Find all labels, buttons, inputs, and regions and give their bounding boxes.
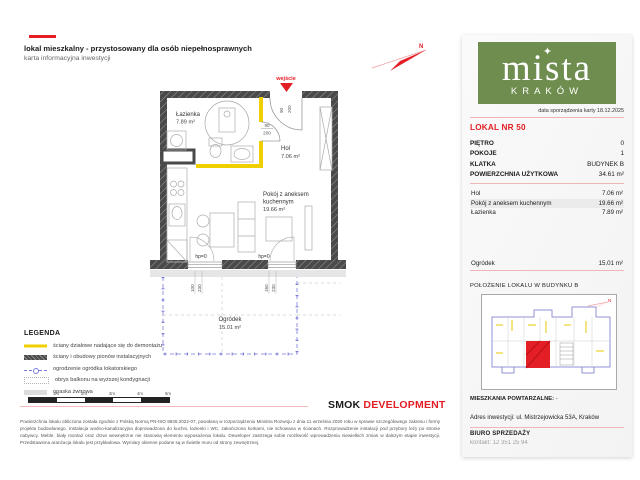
sales-office-contact: kontakt: 12 351 25 94 [470, 440, 624, 446]
attr-row-usable-area: POWIERZCHNIA UŻYTKOWA 34.61 m² [470, 170, 624, 180]
legend-item-fence: ogrodzenie ogródka lokatorskiego [24, 365, 224, 372]
panel-divider-1 [470, 117, 624, 118]
svg-text:230: 230 [197, 284, 202, 292]
svg-text:90: 90 [264, 123, 270, 128]
legend-title: LEGENDA [24, 330, 224, 337]
living-label-line1: Pokój z aneksem [263, 192, 309, 198]
bathroom-label: Łazienka [176, 112, 201, 118]
legend: LEGENDA ściany działowe nadające się do … [24, 330, 224, 400]
kitchen-fixtures [167, 168, 187, 262]
attr-row-staircase: KLATKA BUDYNEK B [470, 160, 624, 170]
unit-attributes: PIĘTRO 0 POKOJE 1 KLATKA BUDYNEK B POWIE… [470, 139, 624, 180]
attr-row-rooms: POKOJE 1 [470, 149, 624, 159]
opening-left-hp-label: hp=0 [195, 254, 206, 260]
installation-shaft [162, 150, 194, 163]
room-labels: Łazienka 7.89 m² Hol 7.06 m² Pokój z ane… [176, 112, 309, 331]
unit-number: LOKAL NR 50 [470, 123, 624, 132]
document-subtitle: karta informacyjna inwestycji [24, 55, 111, 62]
living-label-line2: kuchennym [263, 200, 294, 206]
scale-strip [28, 397, 170, 403]
sales-office-label: BIURO SPRZEDAŻY [470, 431, 624, 437]
repeatable-units-row: MIESZKANIA POWTARZALNE: - [470, 396, 624, 402]
entrance-door-dimension: 90 200 [279, 105, 292, 113]
legend-item-partition: ściany działowe nadające się do demontaż… [24, 342, 224, 349]
room-area-list: Hol 7.06 m² Pokój z aneksem kuchennym 19… [470, 189, 624, 218]
svg-text:200: 200 [287, 105, 292, 113]
bathroom-area: 7.89 m² [176, 120, 195, 126]
mista-logo: ✦ mista KRAKÓW [478, 42, 616, 104]
hall-label: Hol [281, 146, 290, 152]
investment-address: Adres inwestycji: ul. Mistrzejowicka 53A… [470, 415, 624, 421]
building-location-map: N [481, 294, 617, 390]
room-row-hall: Hol 7.06 m² [470, 189, 624, 199]
opening-right-hp-label: hp=0 [258, 254, 269, 260]
info-panel: ✦ mista KRAKÓW data sporządzenia karty 1… [462, 35, 632, 457]
room-row-bathroom: Łazienka 7.89 m² [470, 208, 624, 218]
attr-row-floor: PIĘTRO 0 [470, 139, 624, 149]
developer-logo: SMOK DEVELOPMENT [328, 399, 446, 411]
building-outline [492, 307, 610, 373]
scale-bar: 1m 2m 3m 4m 5m [28, 391, 170, 405]
panel-divider-3 [470, 270, 624, 271]
entrance-label: wejście [275, 76, 296, 82]
fence-swatch [24, 370, 47, 371]
logo-star-icon: ✦ [543, 45, 552, 58]
header-accent-line [29, 35, 56, 38]
opening-left-dimension: 100 230 [190, 284, 202, 292]
developer-logo-development: DEVELOPMENT [363, 399, 445, 411]
scale-2m: 2m [81, 391, 87, 396]
legend-item-shaft: ściany i obudowy pionów instalacyjnych [24, 354, 224, 361]
scale-1m: 1m [53, 391, 59, 396]
gravel-strip [150, 270, 346, 277]
logo-city: KRAKÓW [511, 86, 583, 97]
footer-divider-line [20, 406, 308, 407]
developer-logo-smok: SMOK [328, 399, 363, 411]
apartment-info-card: { "header": { "title": "lokal mieszkalny… [0, 0, 640, 480]
panel-divider-4 [470, 427, 624, 428]
svg-text:200: 200 [263, 131, 271, 136]
floor-plan-drawing: N wejście 90 200 90 [140, 35, 460, 375]
svg-text:90: 90 [279, 107, 284, 113]
scale-5m: 5m [165, 391, 171, 396]
scale-3m: 3m [109, 391, 115, 396]
svg-text:230: 230 [271, 284, 276, 292]
svg-text:100: 100 [190, 284, 195, 292]
legal-disclaimer: Powierzchnia lokalu obliczona została zg… [20, 419, 440, 447]
location-section-label: POŁOŻENIE LOKALU W BUDYNKU B [470, 283, 624, 289]
north-label: N [419, 44, 423, 50]
yellow-wall-swatch [24, 342, 47, 349]
balcony-outline-swatch [24, 377, 49, 384]
entrance-arrow-icon [280, 83, 293, 92]
legend-item-balcony: obrys balkonu na wyższej kondygnacji [24, 377, 224, 384]
north-arrow-icon: N [372, 44, 426, 71]
opening-right-dimension: 160 230 [264, 284, 276, 292]
map-staircase [560, 343, 573, 365]
garden-label: Ogródek [218, 317, 242, 323]
map-north-label: N [608, 298, 611, 303]
svg-text:160: 160 [264, 284, 269, 292]
right-shaft-window [320, 107, 332, 170]
panel-divider-2 [470, 183, 624, 184]
living-area: 19.66 m² [263, 207, 285, 213]
garden-area-row: Ogródek 15.01 m² [470, 260, 624, 267]
highlighted-unit [526, 341, 550, 368]
entrance-door [270, 98, 302, 130]
room-row-living: Pokój z aneksem kuchennym 19.66 m² [470, 199, 624, 209]
living-room-furniture [197, 202, 312, 252]
scale-labels: 1m 2m 3m 4m 5m [28, 391, 170, 397]
hall-area: 7.06 m² [281, 154, 300, 160]
card-date: data sporządzenia karty 18.12.2025 [470, 108, 624, 114]
dark-wall-swatch [24, 355, 47, 360]
scale-4m: 4m [137, 391, 143, 396]
unit-divider-lines [492, 317, 610, 367]
